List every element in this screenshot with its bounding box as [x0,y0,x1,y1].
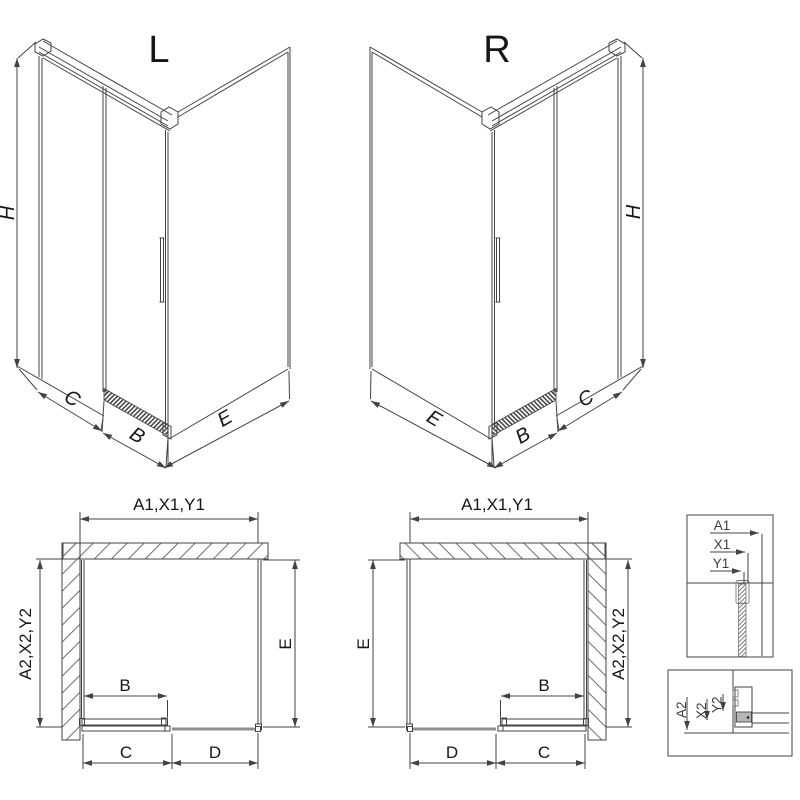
detail1-label-y1: Y1 [713,556,730,571]
detail2-label-y2: Y2 [710,696,725,713]
plan2-depth-codes: A2,X2,Y2 [609,608,628,680]
plan1-label-c: C [120,743,132,762]
dimension-lines [17,42,290,468]
dim-label-b-right: B [512,423,535,449]
perspective-view-left [17,39,290,468]
plan1-label-d: D [209,743,221,762]
plan1-width-codes: A1,X1,Y1 [133,495,205,514]
dim-label-e-left: E [214,406,237,432]
plan-view-left [36,512,300,769]
dim-label-c-right: C [574,385,598,412]
variant-label-right: R [483,29,510,71]
width-dimension [80,512,258,543]
plan2-width-codes: A1,X1,Y1 [461,495,533,514]
plan2-label-e: E [354,638,373,649]
plan-view-right [368,512,632,769]
side-panel-glass [169,47,290,439]
front-panel-end-cap [256,727,261,732]
detail1-label-a1: A1 [714,518,731,533]
shower-enclosure-dimension-diagram: A1 X1 Y1 A2 X2 Y2 L R H C B E H C B E A1… [0,0,800,800]
dim-label-b-left: B [126,423,149,449]
door-dimension [84,696,168,717]
detail1-label-x1: X1 [714,537,731,552]
dim-label-e-right: E [423,406,446,432]
detail-view-vertical-codes: A2 X2 Y2 [668,670,792,756]
glass-edge-hatch [739,584,747,657]
detail-view-horizontal-codes: A1 X1 Y1 [687,515,773,657]
dim-label-height-right: H [623,204,645,219]
roller-screw [747,716,750,719]
diagram-canvas: A1 X1 Y1 A2 X2 Y2 L R H C B E H C B E A1… [0,0,800,800]
variant-label-left: L [148,29,169,71]
door-handle [160,238,165,302]
bottom-dimensions [83,733,258,769]
dim-label-height-left: H [0,205,19,220]
detail2-label-x2: X2 [694,702,709,719]
detail2-label-a2: A2 [674,701,689,718]
depth-dimension [36,559,64,727]
wall-hatch-side [62,543,80,740]
plan2-label-b: B [538,676,549,695]
wall-hatch-top [63,543,268,559]
plan1-depth-codes: A2,X2,Y2 [16,608,35,680]
plan2-label-d: D [446,743,458,762]
plan1-label-b: B [119,676,130,695]
sliding-door-assembly [80,718,171,731]
roller-block [737,712,752,722]
wall-side-glass [17,56,106,416]
plan1-label-e: E [276,638,295,649]
perspective-view-right [370,39,643,468]
plan2-label-c: C [538,743,550,762]
